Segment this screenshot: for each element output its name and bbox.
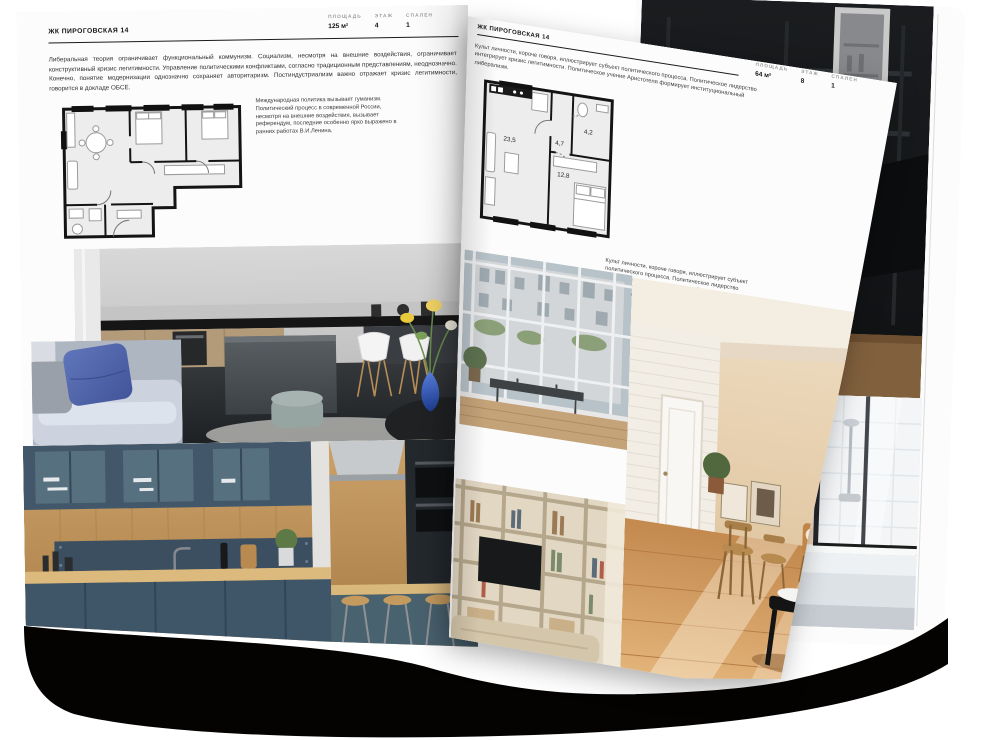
stat-bedrooms-label: СПАЛЕН	[406, 13, 433, 18]
pouf	[271, 390, 323, 428]
stat-floor-label: ЭТАЖ	[375, 14, 393, 19]
left-plan-note: Международная политика вызывает гуманизм…	[255, 96, 398, 137]
left-page: ЖК ПИРОГОВСКАЯ 14 ПЛОЩАДЬ 125 м² ЭТАЖ 4 …	[16, 5, 478, 654]
magazine-mockup: ЖК ПИРОГОВСКАЯ 14 ПЛОЩАДЬ 125 м² ЭТАЖ 4 …	[0, 0, 991, 740]
stat-bedrooms-value: 1	[831, 82, 858, 93]
room-label-bath: 4,2	[584, 129, 593, 137]
left-page-title: ЖК ПИРОГОВСКАЯ 14	[48, 27, 129, 35]
floor-plan-125	[55, 94, 247, 245]
stat-floor: ЭТАЖ 8	[801, 70, 819, 87]
stat-area: ПЛОЩАДЬ 125 м²	[328, 15, 362, 31]
room-label-hall: 4,7	[555, 140, 564, 148]
stat-area-label: ПЛОЩАДЬ	[328, 15, 362, 21]
photo-teal-kitchen	[23, 439, 478, 654]
floor-plan-64-drawing: 23,5 4,7 4,2 12,8	[472, 74, 623, 242]
teal-kitchen-illustration	[23, 439, 478, 654]
stat-floor-value: 8	[801, 78, 819, 88]
stat-floor: ЭТАЖ 4	[375, 14, 393, 29]
sofa-illustration	[31, 339, 183, 445]
stat-bedrooms-value: 1	[406, 21, 433, 28]
left-intro-paragraph: Либеральная теория ограничивает функцион…	[49, 49, 458, 94]
stat-bedrooms: СПАЛЕН 1	[406, 13, 433, 28]
stat-bedrooms: СПАЛЕН 1	[831, 75, 858, 94]
stat-area: ПЛОЩАДЬ 64 м²	[755, 63, 788, 83]
stat-floor-value: 4	[375, 22, 393, 29]
shelving-unit-illustration	[451, 478, 626, 668]
photo-shelving-unit	[451, 478, 626, 668]
stat-area-value: 64 м²	[755, 71, 788, 83]
left-stats: ПЛОЩАДЬ 125 м² ЭТАЖ 4 СПАЛЕН 1	[328, 13, 433, 30]
window-room-illustration	[459, 249, 632, 450]
stat-area-value: 125 м²	[328, 23, 362, 31]
floor-plan-64: 23,5 4,7 4,2 12,8	[472, 74, 623, 242]
floor-plan-125-drawing	[55, 94, 247, 245]
left-title-rule	[48, 36, 458, 44]
photo-sofa	[31, 339, 183, 445]
stat-floor-label: ЭТАЖ	[801, 70, 819, 78]
photo-window-room	[459, 249, 632, 450]
